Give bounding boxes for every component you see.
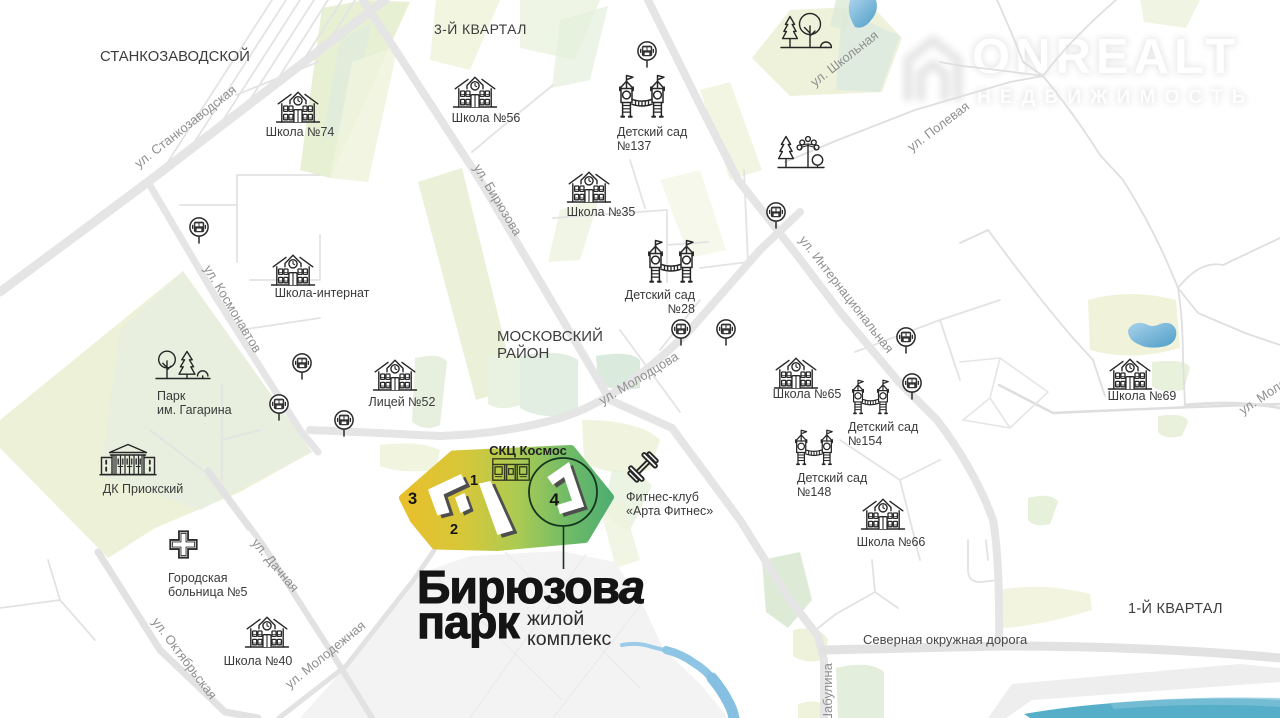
svg-text:Северная окружная дорога: Северная окружная дорога — [863, 632, 1028, 647]
svg-text:Школа №69: Школа №69 — [1108, 389, 1177, 403]
svg-text:Школа-интернат: Школа-интернат — [275, 286, 370, 300]
svg-text:3: 3 — [408, 490, 417, 508]
svg-text:СКЦ Космос: СКЦ Космос — [489, 443, 567, 458]
svg-text:Детский сад: Детский сад — [797, 471, 868, 485]
svg-text:Школа №65: Школа №65 — [773, 387, 842, 401]
svg-text:РАЙОН: РАЙОН — [497, 344, 549, 362]
svg-text:СТАНКОЗАВОДСКОЙ: СТАНКОЗАВОДСКОЙ — [100, 47, 250, 65]
svg-text:3-Й КВАРТАЛ: 3-Й КВАРТАЛ — [434, 20, 527, 37]
svg-text:Детский сад: Детский сад — [625, 288, 696, 302]
svg-text:Парк: Парк — [157, 389, 186, 403]
svg-text:МОСКОВСКИЙ: МОСКОВСКИЙ — [497, 327, 603, 345]
svg-text:1-Й КВАРТАЛ: 1-Й КВАРТАЛ — [1128, 599, 1223, 617]
svg-text:№137: №137 — [617, 139, 651, 153]
svg-text:им. Гагарина: им. Гагарина — [157, 403, 232, 417]
svg-text:Школа №40: Школа №40 — [224, 654, 293, 668]
svg-text:Детский сад: Детский сад — [617, 125, 688, 139]
svg-text:парк: парк — [417, 596, 520, 648]
svg-text:№154: №154 — [848, 434, 882, 448]
svg-text:1: 1 — [470, 473, 478, 489]
svg-text:Шабулина: Шабулина — [820, 662, 835, 718]
svg-text:комплекс: комплекс — [527, 628, 612, 650]
svg-text:Школа №56: Школа №56 — [452, 111, 521, 125]
svg-text:№148: №148 — [797, 485, 831, 499]
svg-text:Школа №66: Школа №66 — [857, 535, 926, 549]
svg-text:Фитнес-клуб: Фитнес-клуб — [626, 490, 699, 504]
svg-text:4: 4 — [550, 490, 560, 510]
svg-text:больница №5: больница №5 — [168, 585, 248, 599]
svg-text:Лицей №52: Лицей №52 — [369, 395, 436, 409]
svg-text:2: 2 — [450, 522, 458, 538]
svg-text:Городская: Городская — [168, 571, 228, 585]
svg-text:Детский сад: Детский сад — [848, 420, 919, 434]
svg-text:ДК Приокский: ДК Приокский — [103, 482, 183, 496]
svg-text:ONREALT: ONREALT — [972, 30, 1240, 84]
svg-text:НЕДВИЖИМОСТЬ: НЕДВИЖИМОСТЬ — [977, 87, 1255, 108]
svg-text:жилой: жилой — [527, 608, 584, 630]
svg-text:«Арта Фитнес»: «Арта Фитнес» — [626, 504, 713, 518]
svg-text:№28: №28 — [668, 302, 695, 316]
svg-text:Школа №74: Школа №74 — [266, 125, 335, 139]
svg-text:Школа №35: Школа №35 — [567, 205, 636, 219]
